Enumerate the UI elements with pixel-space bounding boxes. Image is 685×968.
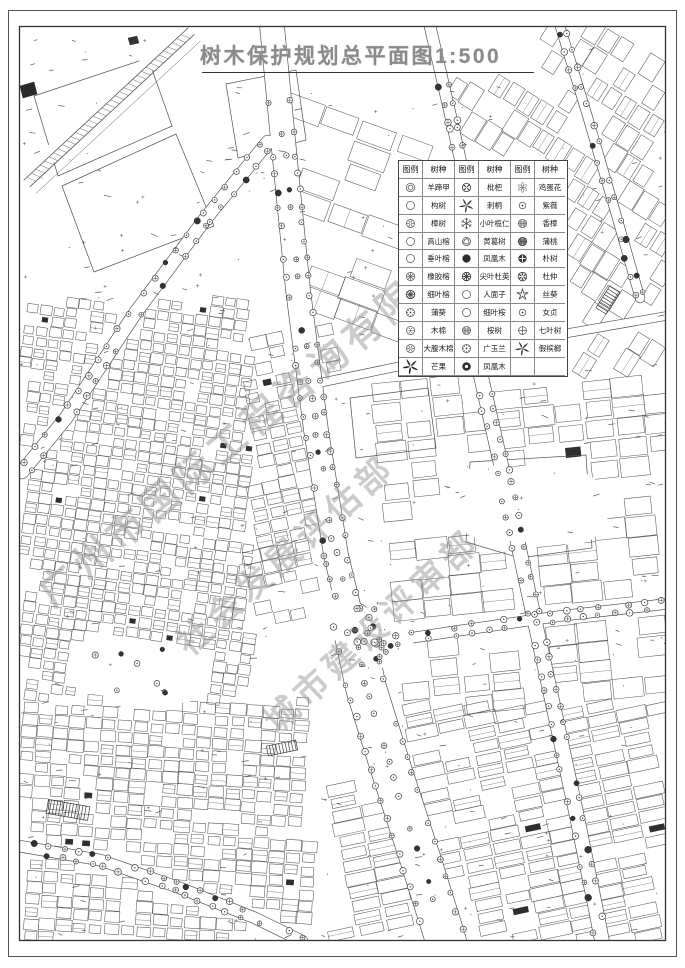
tree-symbol-icon [459,359,474,374]
legend-species-cell: 细叶榕 [423,286,455,304]
legend-symbol-cell [455,322,479,340]
legend-species-cell: 枇杷 [479,179,511,197]
tree-symbol-icon [459,341,474,356]
legend-symbol-cell [455,358,479,376]
legend-species-cell: 假槟榔 [535,340,565,358]
legend-symbol-cell [399,215,423,233]
legend-species-cell: 凤凰木 [479,358,511,376]
legend-symbol-cell [399,286,423,304]
legend-species-cell: 凤凰木 [479,250,511,268]
legend-symbol-cell [455,215,479,233]
tree-symbol-icon [515,341,530,356]
tree-symbol-icon [403,269,418,284]
legend-header-symbol: 图例 [399,161,423,179]
legend-species-cell: 羊蹄甲 [423,179,455,197]
legend-species-cell: 小叶榄仁 [479,215,511,233]
tree-symbol-icon [515,287,530,302]
legend-symbol-cell [455,197,479,215]
legend-header-species: 树种 [535,161,565,179]
legend-species-cell: 芒果 [423,358,455,376]
legend-species-cell: 细叶桉 [479,304,511,322]
legend-symbol-cell [511,197,535,215]
tree-symbol-icon [515,198,530,213]
legend-symbol-cell [455,340,479,358]
tree-symbol-icon [459,323,474,338]
tree-symbol-icon [459,269,474,284]
tree-symbol-icon [403,359,418,374]
tree-symbol-icon [459,198,474,213]
legend-symbol-cell [511,215,535,233]
tree-symbol-icon [403,341,418,356]
tree-symbol-icon [403,251,418,266]
legend-species-cell: 蒲桃 [535,233,565,251]
legend-species-cell: 七叶树 [535,322,565,340]
drawing-title: 树木保护规划总平面图1:500 [200,40,620,70]
legend-symbol-cell [511,340,535,358]
legend-header-symbol: 图例 [455,161,479,179]
legend-species-cell [535,358,565,376]
tree-symbol-icon [515,216,530,231]
tree-symbol-icon [403,305,418,320]
legend-species-cell: 广玉兰 [479,340,511,358]
legend-species-cell: 木棉 [423,322,455,340]
legend-species-cell: 朴树 [535,250,565,268]
legend-symbol-cell [455,179,479,197]
legend-symbol-cell [399,197,423,215]
tree-symbol-icon [459,287,474,302]
legend-symbol-cell [399,358,423,376]
tree-symbol-icon [459,251,474,266]
legend-symbol-cell [455,268,479,286]
tree-symbol-icon [515,323,530,338]
tree-symbol-icon [459,216,474,231]
tree-symbol-icon [403,216,418,231]
legend-symbol-cell [511,358,535,376]
tree-symbol-icon [515,251,530,266]
legend-symbol-cell [511,286,535,304]
legend-species-cell: 桉树 [479,322,511,340]
legend-header-species: 树种 [479,161,511,179]
legend-species-cell: 人面子 [479,286,511,304]
tree-symbol-icon [459,180,474,195]
tree-symbol-icon [515,180,530,195]
legend-symbol-cell [399,250,423,268]
legend-species-cell: 橡胶榕 [423,268,455,286]
legend-species-cell: 杜仲 [535,268,565,286]
legend-symbol-cell [399,179,423,197]
legend-symbol-cell [511,250,535,268]
blueprint-page: 广州市国际工程咨询有限公司 社会发展评估部 城市建设评审部 树木保护规划总平面图… [0,0,685,968]
legend-species-cell: 垂叶榕 [423,250,455,268]
legend-symbol-cell [511,179,535,197]
legend-symbol-cell [399,322,423,340]
legend-species-cell: 刺桐 [479,197,511,215]
tree-symbol-icon [403,234,418,249]
legend-species-cell: 构树 [423,197,455,215]
legend-species-cell: 樟树 [423,215,455,233]
tree-symbol-icon [403,180,418,195]
legend-symbol-cell [399,340,423,358]
legend-symbol-cell [455,233,479,251]
legend-table: 图例树种图例树种图例树种羊蹄甲枇杷鸡蛋花构树刺桐紫薇樟树小叶榄仁香樟高山榕黄葛树… [398,160,568,377]
tree-symbol-icon [515,269,530,284]
legend-species-cell: 鸡蛋花 [535,179,565,197]
legend-header-symbol: 图例 [511,161,535,179]
tree-symbol-icon [515,305,530,320]
legend-symbol-cell [511,304,535,322]
tree-symbol-icon [403,287,418,302]
tree-symbol-icon [459,305,474,320]
legend-species-cell: 女贞 [535,304,565,322]
legend-header-species: 树种 [423,161,455,179]
legend-symbol-cell [511,233,535,251]
legend-species-cell: 蒲葵 [423,304,455,322]
legend-symbol-cell [455,250,479,268]
legend-symbol-cell [455,286,479,304]
legend-species-cell: 黄葛树 [479,233,511,251]
legend-symbol-cell [399,233,423,251]
legend-species-cell: 丝葵 [535,286,565,304]
legend-species-cell: 高山榕 [423,233,455,251]
tree-symbol-icon [403,323,418,338]
tree-symbol-icon [403,198,418,213]
legend-symbol-cell [455,304,479,322]
legend-symbol-cell [511,322,535,340]
legend-species-cell: 大腹木棉 [423,340,455,358]
legend-species-cell: 香樟 [535,215,565,233]
legend-species-cell: 紫薇 [535,197,565,215]
title-underline [202,72,534,73]
legend-symbol-cell [399,268,423,286]
tree-symbol-icon [515,234,530,249]
legend-symbol-cell [511,268,535,286]
tree-symbol-icon [459,234,474,249]
legend-species-cell: 尖叶杜英 [479,268,511,286]
legend-symbol-cell [399,304,423,322]
